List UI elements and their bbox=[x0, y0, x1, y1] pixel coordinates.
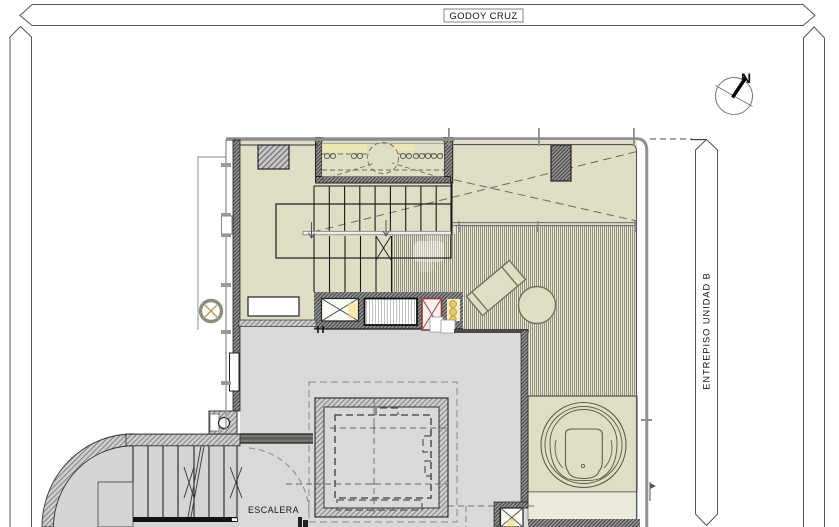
svg-text:ESCALERA: ESCALERA bbox=[248, 505, 299, 515]
svg-text:ENTREPISO UNIDAD B: ENTREPISO UNIDAD B bbox=[702, 272, 712, 390]
svg-text:GODOY CRUZ: GODOY CRUZ bbox=[449, 11, 517, 22]
svg-text:N: N bbox=[741, 70, 751, 86]
